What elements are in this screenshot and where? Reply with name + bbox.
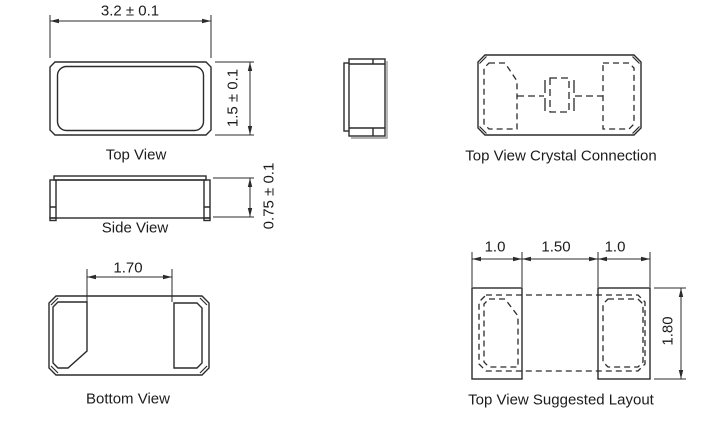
crystal-connection-drawing <box>478 55 641 135</box>
crystal-connection-label: Top View Crystal Connection <box>465 149 656 164</box>
top-view-label: Top View <box>106 148 167 163</box>
side-view-label: Side View <box>102 221 168 236</box>
suggested-layout-drawing <box>472 252 686 379</box>
top-view-width-dimension: 3.2 ± 0.1 <box>101 4 159 19</box>
side-view-drawing <box>50 176 254 221</box>
layout-height-dimension: 1.80 <box>661 316 676 345</box>
top-view-drawing <box>50 15 254 135</box>
bottom-view-pad-spacing-dimension: 1.70 <box>113 261 142 276</box>
end-view-drawing <box>344 59 387 138</box>
line-art-canvas <box>0 0 713 421</box>
crystal-package-drawing-page: 3.2 ± 0.1 1.5 ± 0.1 Top View 0.75 ± 0.1 … <box>0 0 713 421</box>
layout-right-pad-dimension: 1.0 <box>605 240 626 255</box>
bottom-view-label: Bottom View <box>86 392 170 407</box>
layout-left-pad-dimension: 1.0 <box>485 240 506 255</box>
side-view-height-dimension: 0.75 ± 0.1 <box>262 163 277 230</box>
suggested-layout-label: Top View Suggested Layout <box>468 393 654 408</box>
layout-gap-dimension: 1.50 <box>541 240 570 255</box>
bottom-view-drawing <box>49 269 209 375</box>
top-view-height-dimension: 1.5 ± 0.1 <box>226 69 241 127</box>
